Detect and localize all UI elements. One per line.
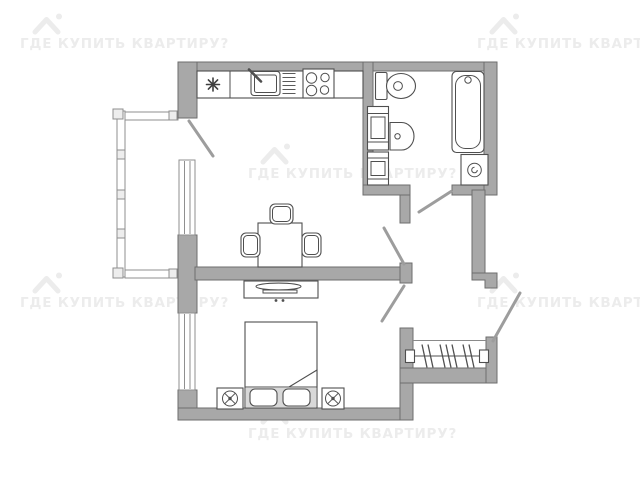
- bedroom-door-swing: [382, 286, 404, 321]
- wall-left-middle: [178, 235, 197, 313]
- wall-bath-bottom-left: [363, 185, 410, 195]
- washbasin-icon: [390, 123, 414, 151]
- wall-hall-stub: [400, 195, 410, 223]
- kitchen-window: [179, 160, 195, 235]
- bed: [245, 322, 317, 408]
- wardrobe: [406, 341, 489, 368]
- bathtub-icon: [452, 72, 484, 153]
- toilet-icon: [376, 73, 416, 100]
- wall-top: [178, 62, 497, 71]
- pillow: [250, 389, 277, 406]
- floor-plan-page: ГДЕ КУПИТЬ КВАРТИРУ? ГДЕ КУПИТЬ КВАРТИРУ…: [0, 0, 640, 480]
- nightstand-lamp-icon: [322, 388, 344, 409]
- entrance-door-swing: [493, 293, 520, 341]
- wall-bottom: [178, 408, 413, 420]
- floor-plan-drawing: [0, 0, 640, 480]
- chair: [302, 233, 321, 257]
- wall-wardrobe-bottom: [400, 368, 497, 383]
- dining-table: [258, 223, 302, 267]
- nightstand-lamp-icon: [217, 388, 243, 409]
- washing-machine-icon: [461, 155, 488, 186]
- kitchen-counter: [197, 69, 363, 98]
- walls: [178, 62, 497, 420]
- wall-hall-right: [472, 190, 485, 280]
- stove-icon: [303, 69, 334, 98]
- wall-entry-nib: [472, 273, 497, 288]
- balcony-railing: [113, 109, 178, 278]
- living-room-door-swing: [384, 228, 404, 264]
- wall-doorpost: [400, 263, 412, 283]
- tv-stand: [244, 281, 318, 302]
- shelving-cabinet: [368, 152, 389, 185]
- wall-left-upper: [178, 62, 197, 118]
- pillow: [283, 389, 310, 406]
- wall-room-divider: [195, 267, 412, 280]
- chair: [241, 233, 260, 257]
- bedroom-window: [179, 313, 195, 390]
- bathroom-door-swing: [419, 192, 451, 213]
- asterisk-symbol: [207, 78, 220, 91]
- balcony-door-swing: [189, 121, 213, 156]
- shelving-cabinet: [368, 107, 389, 151]
- chair: [270, 204, 293, 224]
- kitchen-sink-icon: [249, 70, 280, 96]
